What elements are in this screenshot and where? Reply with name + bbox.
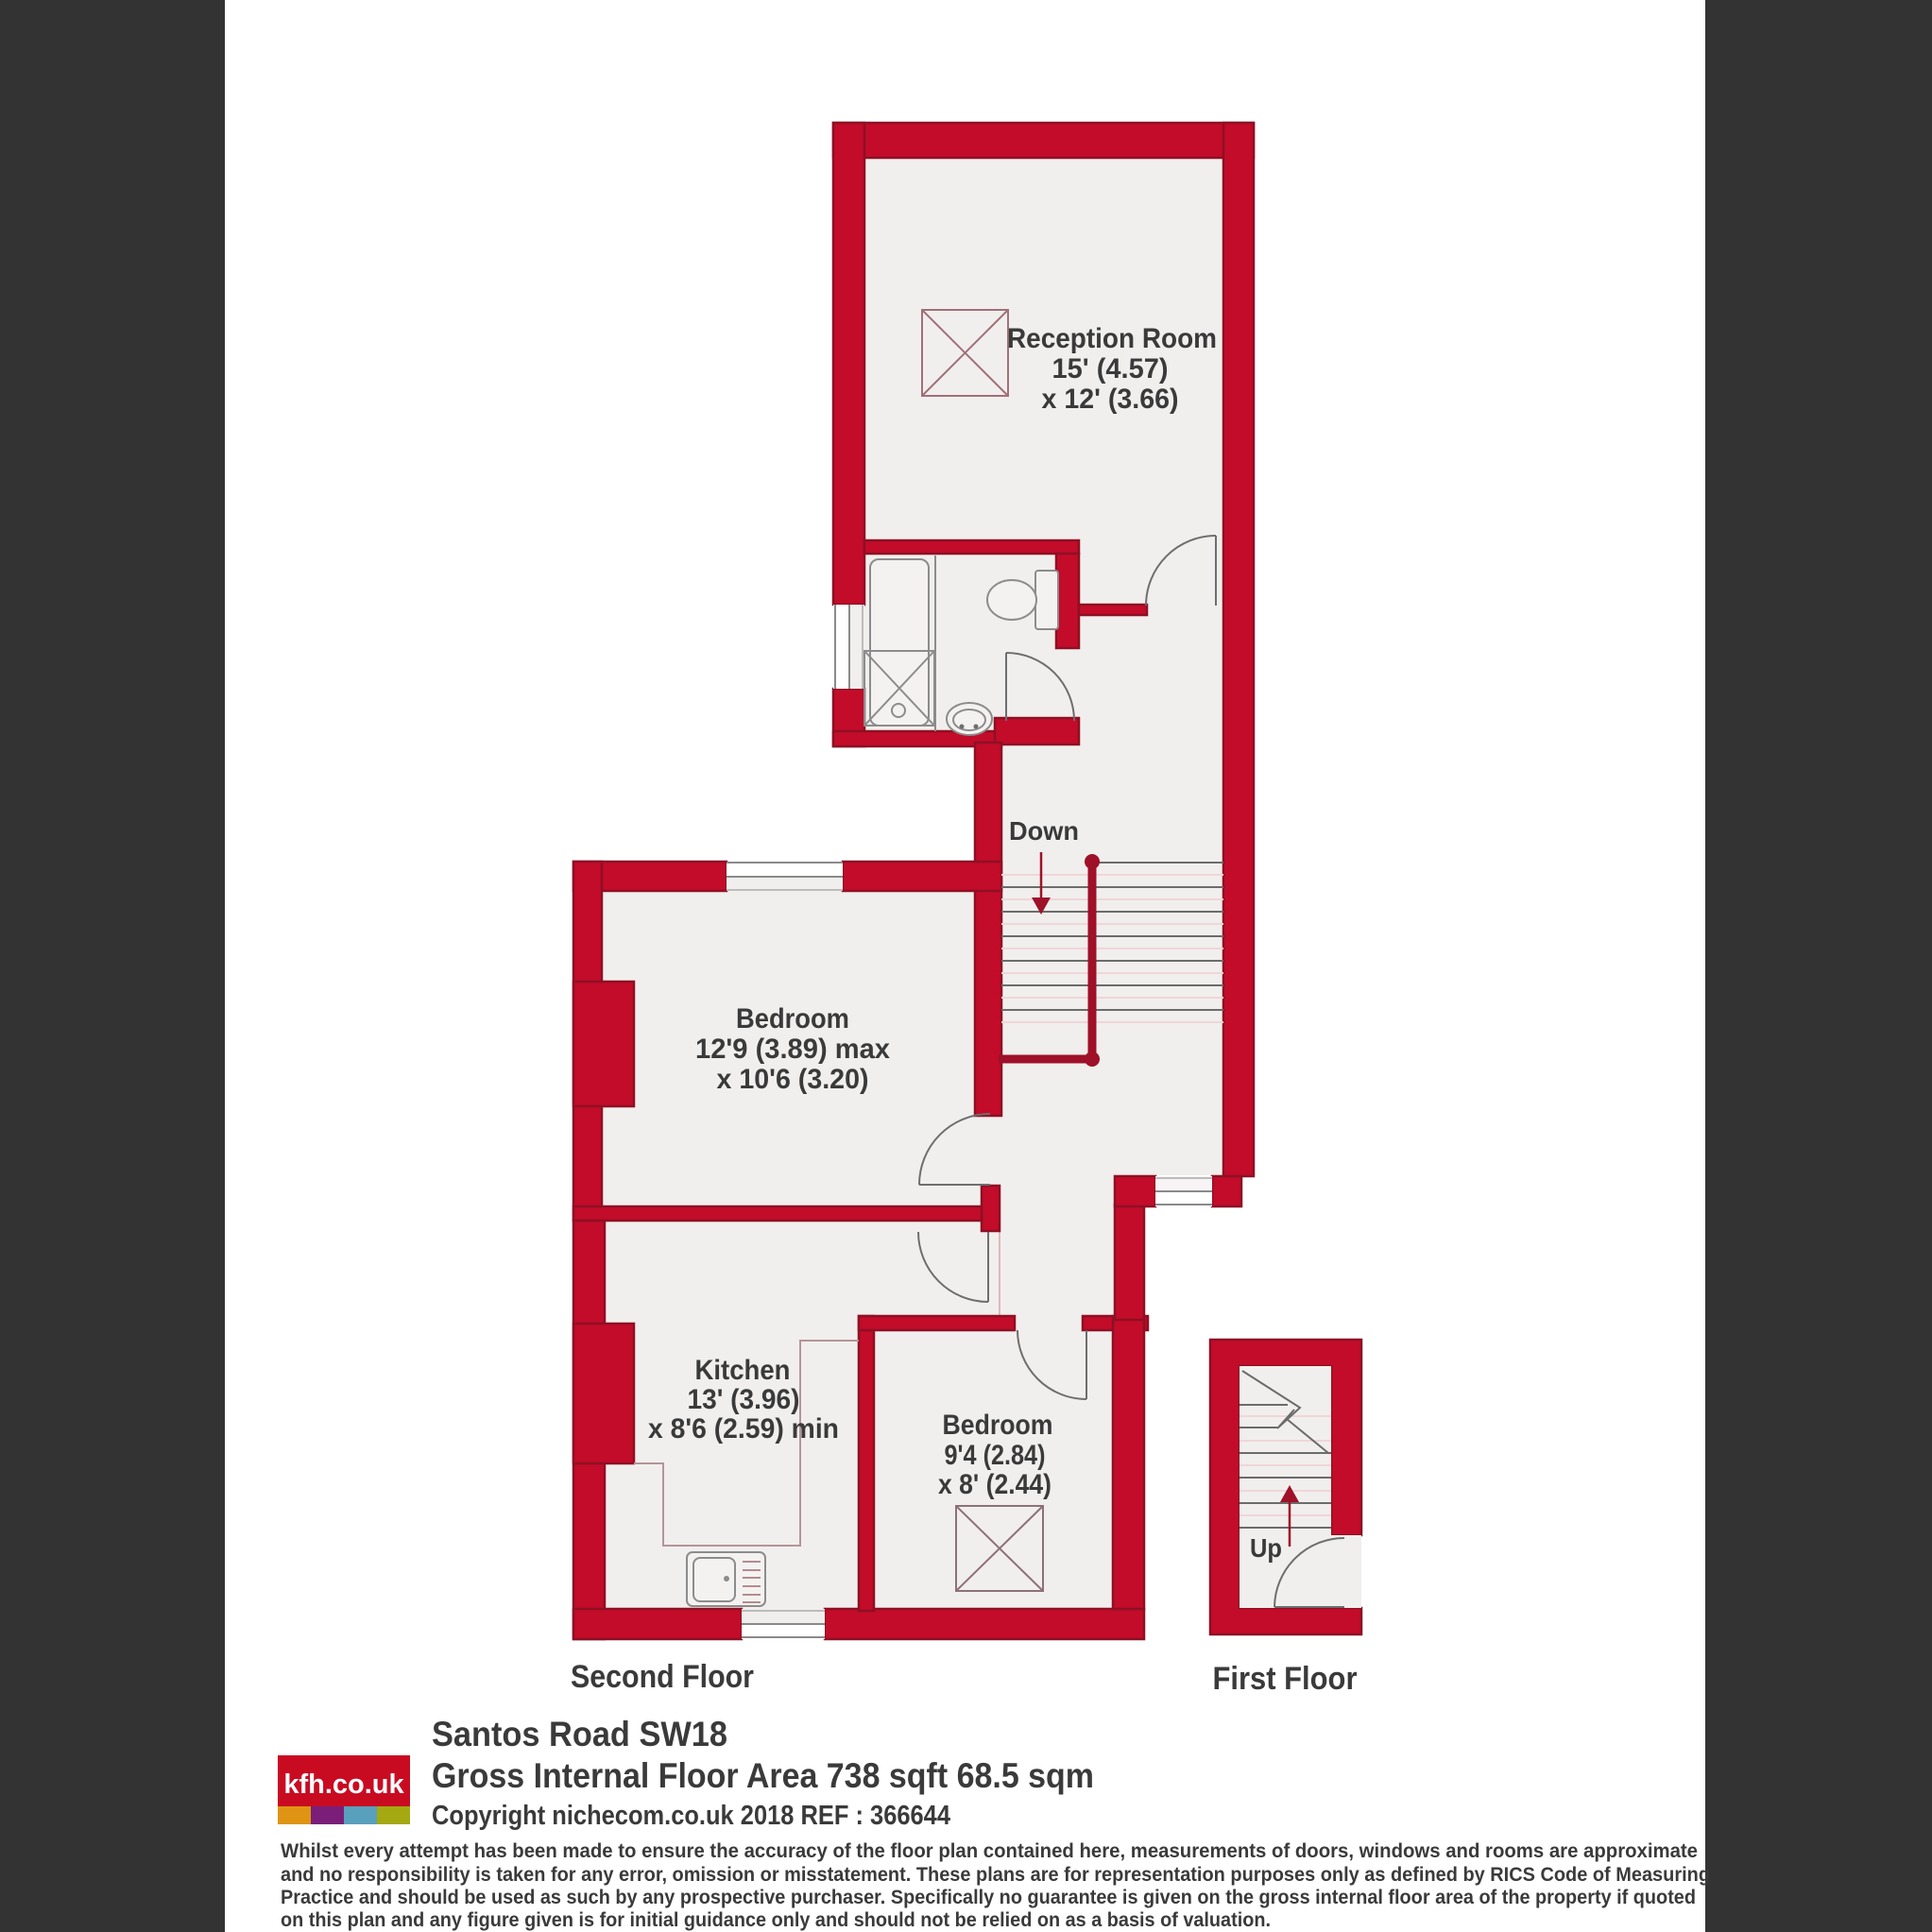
svg-text:Santos Road SW18: Santos Road SW18	[432, 1715, 727, 1753]
svg-text:15' (4.57): 15' (4.57)	[1052, 353, 1169, 385]
svg-text:on this plan and any figure gi: on this plan and any figure given is for…	[281, 1909, 1271, 1931]
svg-text:Down: Down	[1009, 816, 1079, 846]
svg-text:Up: Up	[1250, 1533, 1282, 1563]
svg-text:First Floor: First Floor	[1213, 1661, 1358, 1697]
svg-text:x 10'6 (3.20): x 10'6 (3.20)	[717, 1064, 869, 1095]
svg-text:x 8'6 (2.59) min: x 8'6 (2.59) min	[648, 1413, 839, 1445]
svg-text:Practice and should be used as: Practice and should be used as such by a…	[281, 1887, 1696, 1908]
svg-text:9'4 (2.84): 9'4 (2.84)	[945, 1440, 1046, 1471]
svg-text:kfh.co.uk: kfh.co.uk	[283, 1770, 404, 1800]
svg-text:Second Floor: Second Floor	[571, 1659, 754, 1695]
svg-text:and no responsibility is taken: and no responsibility is taken for any e…	[281, 1864, 1710, 1886]
svg-text:Whilst every attempt has been: Whilst every attempt has been made to en…	[281, 1840, 1698, 1862]
svg-text:Gross Internal Floor Area 738: Gross Internal Floor Area 738 sqft 68.5 …	[432, 1756, 1094, 1795]
svg-text:13' (3.96): 13' (3.96)	[688, 1384, 800, 1415]
svg-text:Kitchen: Kitchen	[695, 1355, 791, 1386]
svg-text:Copyright nichecom.co.uk 2018: Copyright nichecom.co.uk 2018 REF : 3666…	[432, 1801, 950, 1831]
svg-text:Bedroom: Bedroom	[736, 1003, 849, 1034]
svg-text:x 12' (3.66): x 12' (3.66)	[1042, 384, 1179, 415]
svg-text:Reception Room: Reception Room	[1007, 323, 1217, 354]
svg-text:x 8' (2.44): x 8' (2.44)	[938, 1469, 1051, 1500]
svg-text:12'9 (3.89) max: 12'9 (3.89) max	[695, 1034, 890, 1065]
svg-text:Bedroom: Bedroom	[943, 1410, 1053, 1441]
